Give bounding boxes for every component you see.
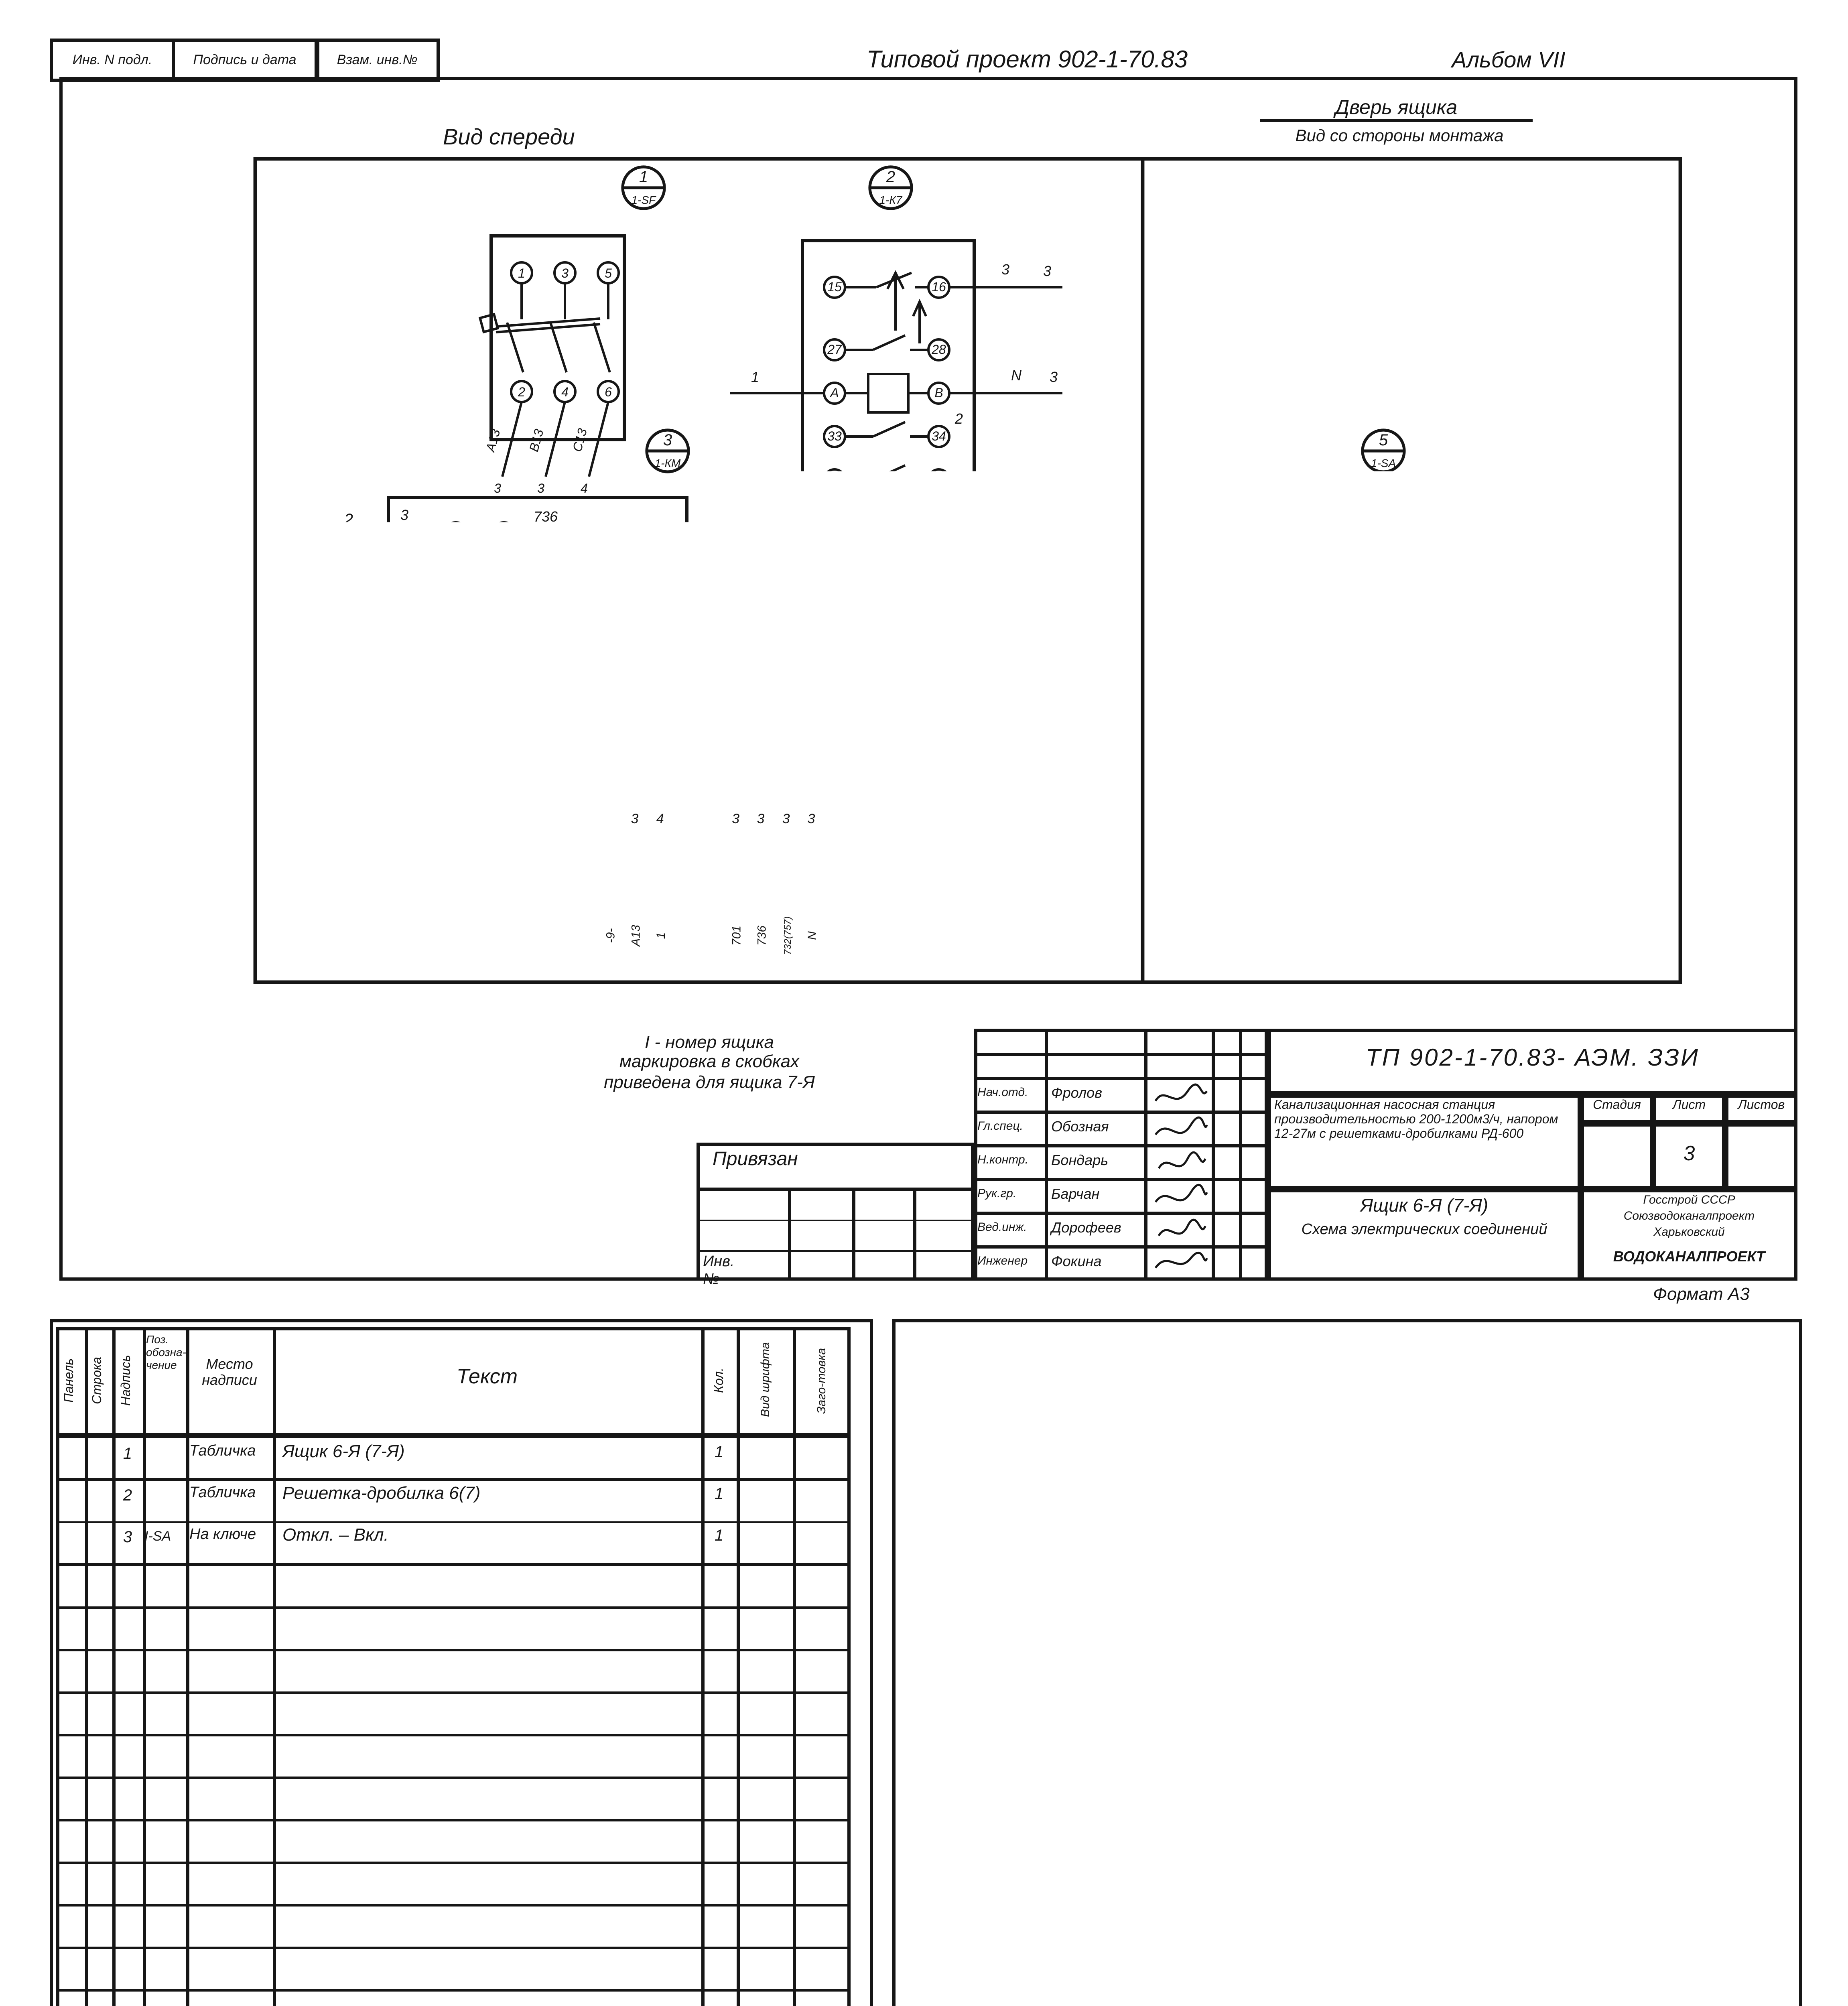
c1-b2: 2 — [518, 385, 525, 399]
svg-text:54: 54 — [449, 644, 463, 658]
svg-text:27: 27 — [827, 342, 842, 357]
svg-text:5: 5 — [1379, 431, 1388, 449]
component-2-k7: 15 27 А 33 41 16 28 В 34 42 1 3 3 N 3 2 — [730, 241, 1062, 493]
c1-n3: 4 — [581, 481, 588, 495]
svg-text:В: В — [644, 828, 652, 843]
sig-role-3: Рук.гр. — [977, 1188, 1045, 1201]
drawing-title-1: Ящик 6-Я (7-Я) — [1268, 1197, 1581, 1218]
c1-n1: 3 — [494, 481, 501, 495]
svg-text:4: 4 — [344, 629, 353, 647]
sig-role-5: Инженер — [977, 1255, 1045, 1269]
svg-text:К: К — [541, 933, 551, 950]
svg-text:К: К — [1216, 552, 1227, 570]
svg-text:3: 3 — [1001, 261, 1009, 278]
sig-name-0: Фролов — [1051, 1085, 1141, 1101]
svg-text:1: 1 — [335, 675, 343, 692]
svg-text:5: 5 — [816, 698, 824, 713]
svg-text:62: 62 — [497, 644, 511, 658]
format-a3: Формат А3 — [1653, 1285, 1750, 1305]
svg-text:6: 6 — [988, 711, 995, 726]
svg-text:3: 3 — [816, 652, 824, 666]
col-shrift: Вид шрифта — [740, 1330, 793, 1430]
svg-text:1: 1 — [1280, 536, 1288, 552]
sig-role-1: Гл.спец. — [977, 1120, 1045, 1134]
col-stroka: Строка — [87, 1330, 111, 1430]
col-nadpis: Надпись — [114, 1330, 141, 1430]
svg-text:32: 32 — [580, 828, 595, 843]
svg-text:К: К — [1595, 636, 1606, 654]
component-1-sf: 1 3 5 2 4 6 А13 В13 С13 3 3 4 — [480, 236, 624, 495]
row1-kol: 1 — [701, 1444, 737, 1462]
svg-text:1-КЛ: 1-КЛ — [879, 540, 903, 553]
c1-t3: 3 — [561, 266, 569, 280]
svg-text:А13: А13 — [1511, 536, 1537, 552]
org-line1: Госстрой СССР — [1581, 1194, 1797, 1208]
svg-text:К: К — [335, 733, 344, 749]
svg-text:К: К — [1595, 540, 1606, 557]
doc-number: ТП 902-1-70.83- АЭМ. ЗЗИ — [1268, 1046, 1797, 1073]
svg-text:736: 736 — [534, 508, 558, 525]
svg-text:4: 4 — [607, 678, 615, 695]
svg-text:С13: С13 — [1056, 603, 1081, 618]
terminal-strip-k: -9- А13 1 701 736 732(757) N 3 4 3 3 3 3 — [591, 811, 849, 982]
row2-mesto: Табличка — [189, 1486, 273, 1503]
svg-text:-9-: -9- — [604, 928, 617, 943]
col-panel: Панель — [58, 1330, 83, 1430]
svg-text:К: К — [720, 694, 729, 711]
svg-text:1: 1 — [1115, 606, 1123, 623]
svg-text:3: 3 — [1117, 735, 1125, 751]
row3-num: 3 — [112, 1529, 143, 1547]
svg-text:К: К — [698, 703, 707, 719]
sig-name-1: Обозная — [1051, 1119, 1141, 1135]
org-line3: Харьковский — [1581, 1226, 1797, 1240]
svg-text:1-КМ: 1-КМ — [655, 457, 681, 469]
svg-text:В13: В13 — [384, 673, 409, 688]
drawing-title-2: Схема электрических соединений — [1276, 1223, 1573, 1240]
svg-text:N: N — [697, 797, 707, 814]
svg-text:4: 4 — [761, 725, 769, 741]
badge-3: 3 1-КМ — [647, 430, 688, 472]
c1-wire-a13: А13 — [483, 427, 503, 454]
col-poz: Поз. обозна- чение — [146, 1335, 186, 1373]
sig-name-2: Бондарь — [1051, 1152, 1141, 1168]
signature-squiggles — [1149, 1082, 1210, 1274]
svg-text:732(757): 732(757) — [782, 916, 793, 955]
stamp-vzam-inv: Взам. инв.№ — [315, 39, 440, 82]
drawing-panel-border — [255, 159, 1680, 982]
c1-n2: 3 — [537, 481, 544, 495]
svg-text:4: 4 — [400, 625, 408, 642]
svg-text:4: 4 — [886, 515, 895, 532]
svg-text:3: 3 — [500, 710, 508, 724]
svg-text:2: 2 — [954, 410, 963, 427]
door-title: Дверь ящика — [1260, 96, 1533, 122]
row3-poz: I-SA — [144, 1529, 186, 1545]
svg-text:С14: С14 — [1056, 730, 1081, 745]
svg-text:2: 2 — [717, 807, 725, 823]
svg-text:В: В — [934, 386, 943, 400]
svg-text:41: 41 — [827, 472, 842, 487]
row1-mesto: Табличка — [189, 1444, 273, 1462]
typical-project-number: Типовой проект 902-1-70.83 — [754, 48, 1300, 75]
note-line2: маркировка в скобках — [565, 1053, 854, 1073]
sig-role-0: Нач.отд. — [977, 1086, 1045, 1100]
svg-text:61: 61 — [497, 525, 511, 540]
svg-text:3: 3 — [1444, 635, 1452, 652]
svg-text:33: 33 — [827, 429, 842, 443]
svg-text:2: 2 — [452, 828, 459, 843]
drawing-document: Инв. N подл. Подпись и дата Взам. инв.№ … — [0, 0, 1848, 2006]
col-kol: Кол. — [705, 1330, 737, 1430]
sig-name-4: Дорофеев — [1051, 1220, 1141, 1236]
svg-text:1: 1 — [1444, 552, 1452, 568]
svg-text:3: 3 — [757, 811, 765, 826]
stamp-podpis-data: Подпись и дата — [171, 39, 319, 82]
svg-text:2: 2 — [344, 511, 353, 528]
svg-text:732(757): 732(757) — [528, 630, 576, 643]
position-badges: 1 1-SF 2 1-К7 3 1-КМ 4 1-КЛ 5 1-SA К — [523, 167, 1404, 950]
org-line4: ВОДОКАНАЛПРОЕКТ — [1581, 1249, 1797, 1265]
svg-text:2: 2 — [988, 618, 995, 633]
list-label: Лист — [1653, 1099, 1725, 1114]
row1-num: 1 — [112, 1446, 143, 1464]
c1-wire-b13: В13 — [526, 427, 546, 453]
empty-rows — [56, 1565, 851, 2006]
svg-text:К: К — [717, 839, 727, 855]
svg-text:1: 1 — [335, 704, 343, 721]
svg-text:1: 1 — [751, 369, 759, 385]
col-zagotovka: Заго-товка — [796, 1330, 849, 1430]
svg-text:4: 4 — [500, 828, 508, 843]
svg-text:К: К — [594, 523, 603, 539]
row2-kol: 1 — [701, 1486, 737, 1504]
row3-kol: 1 — [701, 1528, 737, 1546]
sig-role-4: Вед.инж. — [977, 1221, 1045, 1235]
note-line3: приведена для ящика 7-Я — [565, 1073, 854, 1093]
svg-text:3: 3 — [663, 431, 672, 449]
schematic-drawing: 1 3 5 2 4 6 А13 В13 С13 3 3 4 1 — [249, 144, 1693, 995]
svg-text:4: 4 — [656, 811, 664, 826]
svg-text:28: 28 — [931, 342, 946, 357]
svg-text:1: 1 — [639, 168, 648, 186]
component-4-kl: 1 3 5 7 2 4 6 8 С13 1 С14 3 1 2 К 4 3 — [720, 579, 1125, 807]
stage-label: Стадия — [1581, 1099, 1653, 1114]
sheet2-blank-panel — [892, 1319, 1802, 2006]
svg-text:1-SA: 1-SA — [1371, 457, 1396, 469]
top-stamp-table: Инв. N подл. Подпись и дата Взам. инв.№ — [50, 39, 440, 82]
svg-text:8: 8 — [988, 751, 995, 766]
project-text: Канализационная насосная станция произво… — [1274, 1099, 1576, 1142]
svg-text:34: 34 — [932, 429, 946, 443]
col-tekst: Текст — [273, 1366, 701, 1389]
c1-b6: 6 — [605, 385, 612, 399]
badge-4: 4 1-КЛ — [870, 514, 912, 555]
svg-text:2: 2 — [698, 678, 706, 695]
svg-text:N: N — [806, 931, 819, 940]
row2-num: 2 — [112, 1488, 143, 1506]
row1-text: Ящик 6-Я (7-Я) — [282, 1443, 697, 1462]
svg-text:4: 4 — [1365, 635, 1373, 652]
svg-text:3: 3 — [721, 736, 729, 753]
c1-b4: 4 — [561, 385, 569, 399]
svg-text:3: 3 — [1050, 369, 1058, 385]
svg-text:4: 4 — [988, 673, 995, 687]
svg-text:3: 3 — [782, 811, 790, 826]
c1-wire-c13: С13 — [570, 427, 590, 453]
c1-t1: 1 — [518, 266, 525, 280]
svg-text:15: 15 — [827, 280, 842, 294]
svg-text:С14: С14 — [541, 675, 566, 690]
svg-text:701: 701 — [730, 926, 743, 946]
svg-text:53: 53 — [449, 525, 463, 540]
badge-5: 5 1-SA — [1363, 430, 1404, 472]
svg-text:2: 2 — [720, 664, 729, 680]
svg-text:3: 3 — [400, 507, 408, 523]
svg-text:3: 3 — [808, 811, 815, 826]
svg-text:1-SF: 1-SF — [632, 194, 657, 206]
svg-text:16: 16 — [932, 280, 946, 294]
component-3-km: 53 61 54 62 А 1 3 5 31 2 4 6 32 В 736 К — [335, 497, 727, 871]
svg-text:А13: А13 — [384, 702, 409, 717]
inv-number-label: Инв. № — [703, 1255, 735, 1289]
svg-text:А13: А13 — [629, 925, 642, 947]
badge-2: 2 1-К7 — [870, 167, 912, 209]
svg-text:А: А — [471, 674, 481, 688]
badge-1: 1 1-SF — [623, 167, 664, 209]
svg-text:2: 2 — [886, 168, 895, 186]
badge-k: К — [523, 904, 568, 950]
svg-text:736: 736 — [755, 926, 768, 946]
sheet-number: 3 — [1653, 1143, 1725, 1166]
svg-text:2: 2 — [1365, 552, 1373, 568]
svg-text:732(757): 732(757) — [1250, 621, 1302, 635]
svg-text:42: 42 — [932, 472, 946, 487]
svg-text:1: 1 — [452, 716, 459, 731]
svg-text:3: 3 — [631, 811, 639, 826]
col-mesto: Место надписи — [186, 1356, 273, 1389]
note-line1: I - номер ящика — [565, 1033, 854, 1053]
svg-text:3: 3 — [1043, 263, 1051, 279]
album-number: Альбом VII — [1380, 48, 1637, 73]
svg-text:К: К — [1213, 636, 1224, 654]
component-5-sa: 2 4 1 3 1 К 732(757) К А13 К 701 К — [1213, 496, 1606, 777]
svg-text:31: 31 — [580, 710, 595, 724]
svg-text:1: 1 — [816, 610, 824, 625]
listov-label: Листов — [1725, 1099, 1797, 1114]
svg-text:3: 3 — [732, 811, 739, 826]
row3-text: Откл. – Вкл. — [282, 1526, 697, 1546]
svg-text:1: 1 — [654, 932, 668, 939]
c1-t5: 5 — [605, 266, 612, 280]
sig-role-2: Н.контр. — [977, 1154, 1045, 1167]
row2-text: Решетка-дробилка 6(7) — [282, 1484, 697, 1504]
org-line2: Союзводоканалпроект — [1581, 1210, 1797, 1224]
sig-name-3: Барчан — [1051, 1186, 1141, 1202]
svg-text:3: 3 — [698, 731, 706, 748]
stamp-inv-podl: Инв. N подл. — [50, 39, 175, 82]
svg-text:701: 701 — [1516, 619, 1540, 636]
svg-text:1-К7: 1-К7 — [879, 194, 903, 206]
sheet1-note: I - номер ящика маркировка в скобках при… — [565, 1033, 854, 1093]
sig-name-5: Фокина — [1051, 1253, 1141, 1269]
svg-text:6: 6 — [545, 828, 552, 843]
svg-text:N: N — [1011, 367, 1022, 384]
svg-text:7: 7 — [816, 745, 824, 759]
svg-text:5: 5 — [545, 708, 552, 723]
svg-text:А: А — [829, 386, 839, 400]
row3-mesto: На ключе — [189, 1528, 273, 1545]
svg-text:К: К — [600, 642, 609, 658]
privyazan-label: Привязан — [713, 1149, 798, 1171]
svg-text:1: 1 — [761, 640, 769, 656]
